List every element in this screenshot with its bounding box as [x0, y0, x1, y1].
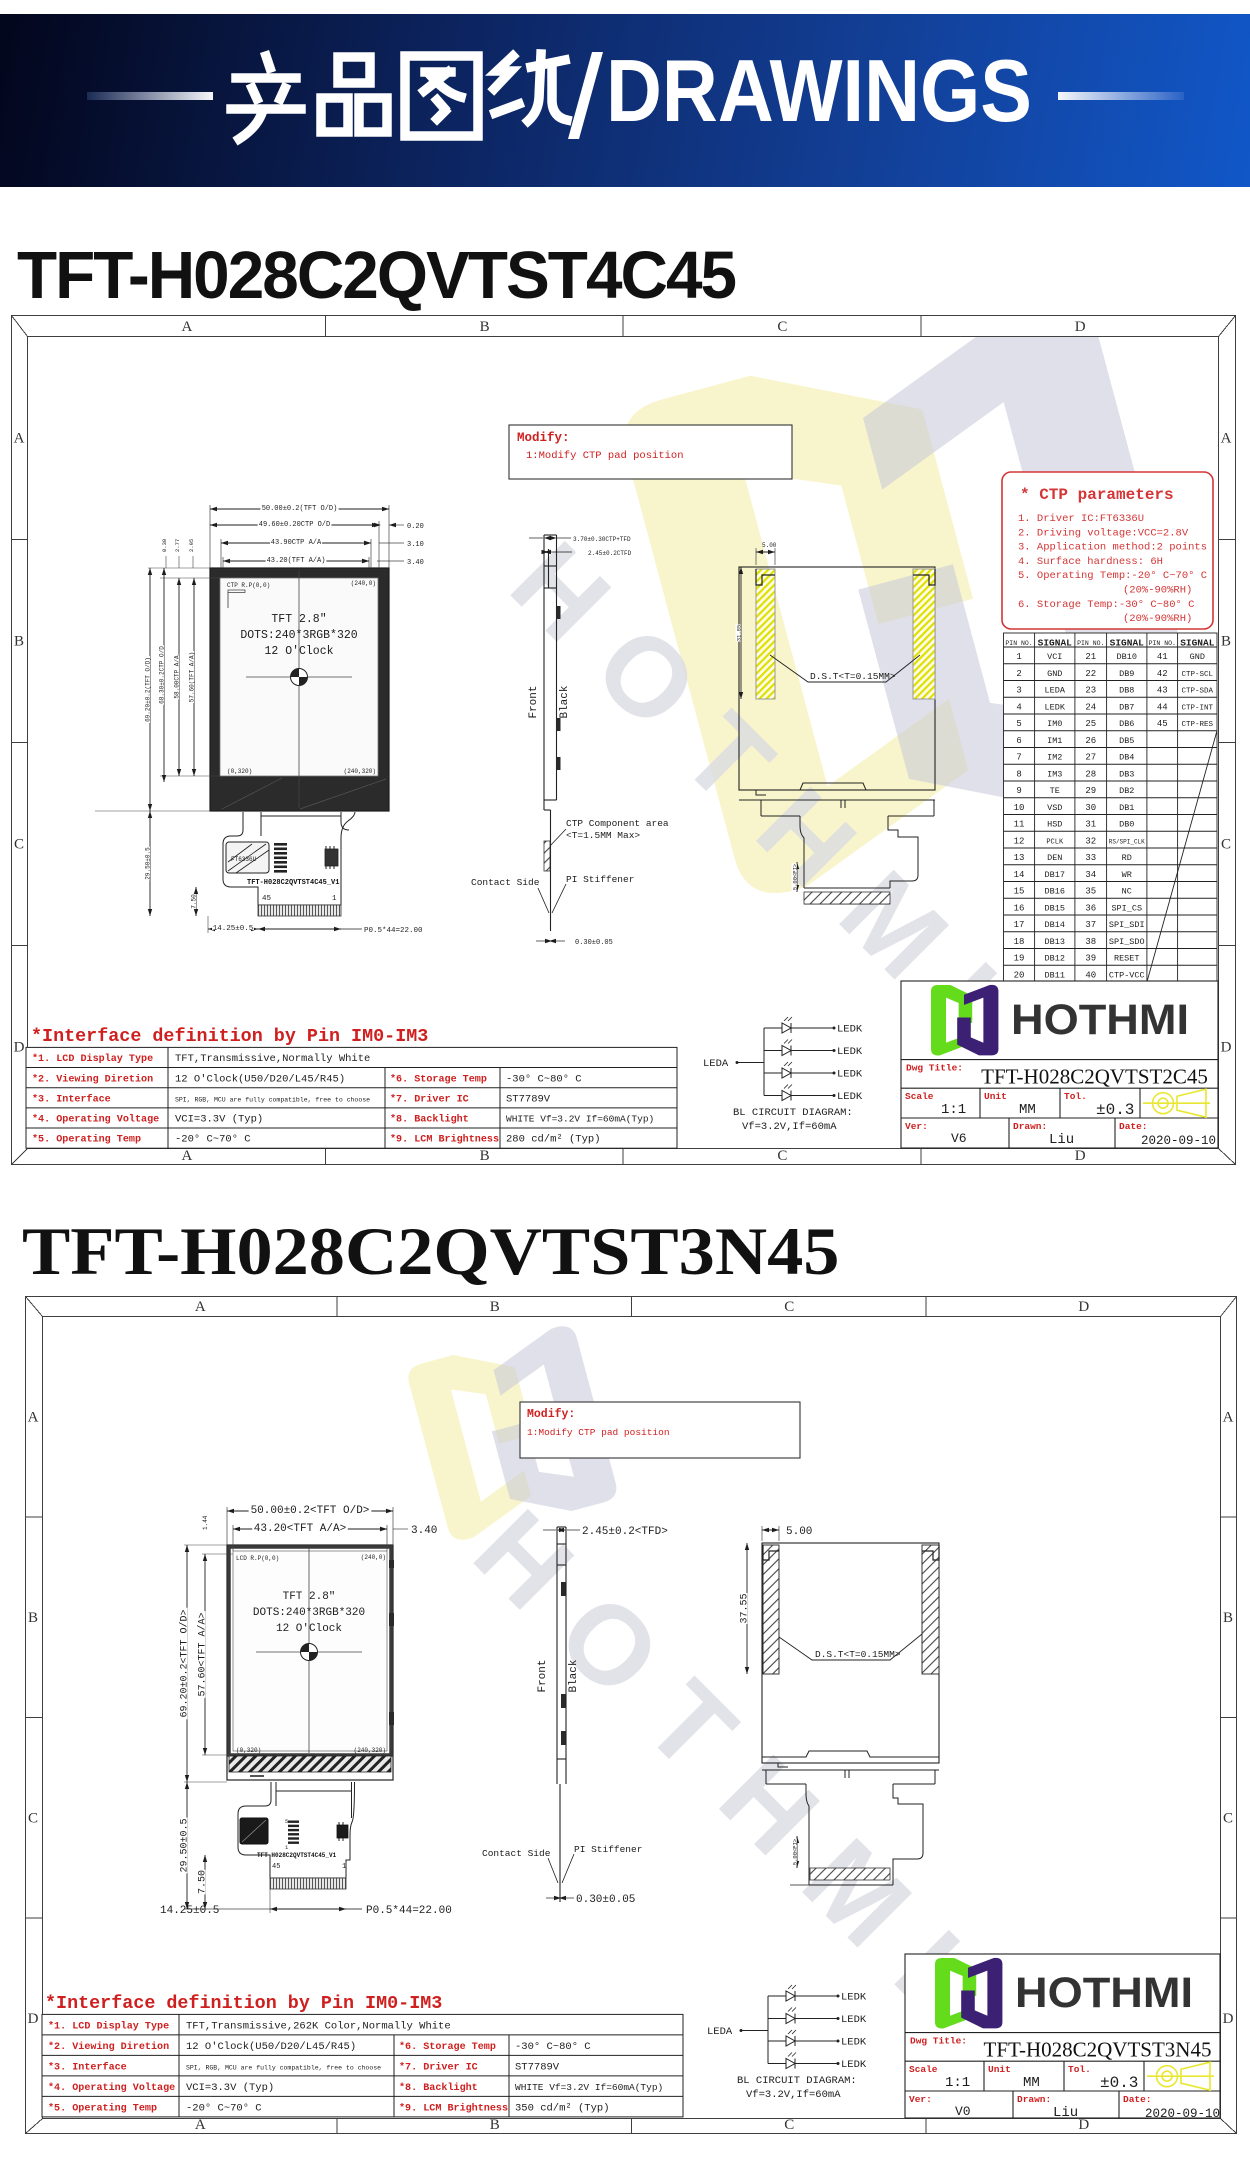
svg-text:4: 4 — [1016, 702, 1021, 712]
svg-text:12 O'Clock(U50/D20/L45/R45): 12 O'Clock(U50/D20/L45/R45) — [175, 1073, 345, 1085]
svg-text:TFT-H028C2QVTST4C45_V1: TFT-H028C2QVTST4C45_V1 — [247, 879, 339, 887]
svg-text:SPI_CS: SPI_CS — [1111, 903, 1142, 913]
svg-text:D.S.T<T=0.15MM>: D.S.T<T=0.15MM> — [810, 671, 896, 682]
svg-text:69.20±0.2(TFT O/D): 69.20±0.2(TFT O/D) — [145, 657, 152, 722]
svg-text:<T=1.5MM Max>: <T=1.5MM Max> — [566, 830, 640, 841]
svg-text:CTP Component area: CTP Component area — [566, 818, 669, 829]
svg-text:Ver:: Ver: — [909, 2094, 932, 2105]
svg-text:DB4: DB4 — [1119, 753, 1134, 763]
svg-text:D.S.T<T=0.15MM>: D.S.T<T=0.15MM> — [815, 1649, 901, 1660]
svg-text:3. Application method:2 points: 3. Application method:2 points — [1018, 542, 1207, 554]
svg-text:DB17: DB17 — [1045, 870, 1065, 880]
svg-text:Front: Front — [537, 1659, 549, 1692]
svg-text:B: B — [480, 319, 490, 335]
svg-text:0.30: 0.30 — [161, 539, 168, 552]
svg-text:41: 41 — [1157, 652, 1168, 662]
svg-text:LEDK: LEDK — [841, 1992, 867, 2004]
svg-text:-30° C~80° C: -30° C~80° C — [506, 1073, 582, 1085]
svg-text:1.44: 1.44 — [202, 1515, 209, 1530]
svg-text:A: A — [28, 1409, 39, 1425]
svg-text:DOTS:240*3RGB*320: DOTS:240*3RGB*320 — [253, 1607, 365, 1619]
svg-text:PI Stiffener: PI Stiffener — [574, 1844, 642, 1855]
svg-text:45: 45 — [272, 1863, 280, 1871]
svg-text:PCLK: PCLK — [1046, 838, 1064, 846]
svg-text:IM0: IM0 — [1047, 719, 1062, 729]
svg-text:TFT-H028C2QVTST2C45: TFT-H028C2QVTST2C45 — [981, 1065, 1208, 1089]
svg-text:WHITE Vf=3.2V If=60mA(Typ): WHITE Vf=3.2V If=60mA(Typ) — [515, 2082, 663, 2093]
svg-text:Dwg Title:: Dwg Title: — [906, 1063, 963, 1074]
svg-text:Vf=3.2V,If=60mA: Vf=3.2V,If=60mA — [746, 2089, 841, 2101]
svg-text:5.00<PI>: 5.00<PI> — [791, 1839, 798, 1865]
svg-text:CTP-VCC: CTP-VCC — [1109, 970, 1145, 980]
svg-text:LEDK: LEDK — [1045, 702, 1066, 712]
svg-text:TFT 2.8": TFT 2.8" — [283, 1591, 336, 1603]
svg-text:D: D — [14, 1040, 25, 1056]
svg-text:2.45±0.2<TFD>: 2.45±0.2<TFD> — [582, 1526, 668, 1538]
svg-text:5.00: 5.00 — [762, 542, 777, 549]
svg-text:DB15: DB15 — [1045, 903, 1065, 913]
svg-text:LEDK: LEDK — [841, 2059, 867, 2071]
svg-text:350 cd/m² (Typ): 350 cd/m² (Typ) — [515, 2102, 610, 2114]
svg-text:* CTP parameters: * CTP parameters — [1020, 486, 1174, 504]
svg-text:9: 9 — [1016, 786, 1021, 796]
svg-text:3.10: 3.10 — [407, 541, 424, 549]
svg-text:23: 23 — [1085, 686, 1096, 696]
svg-text:VCI=3.3V (Typ): VCI=3.3V (Typ) — [186, 2082, 274, 2094]
svg-text:Date:: Date: — [1123, 2094, 1152, 2105]
svg-text:LEDK: LEDK — [837, 1069, 863, 1081]
svg-text:DB2: DB2 — [1119, 786, 1134, 796]
svg-text:12 O'Clock(U50/D20/L45/R45): 12 O'Clock(U50/D20/L45/R45) — [186, 2041, 356, 2053]
svg-text:21: 21 — [1085, 652, 1096, 662]
svg-text:SPI, RGB, MCU are fully compat: SPI, RGB, MCU are fully compatible, free… — [175, 1096, 370, 1103]
svg-text:BL CIRCUIT DIAGRAM:: BL CIRCUIT DIAGRAM: — [737, 2075, 857, 2087]
svg-text:8: 8 — [1016, 769, 1021, 779]
svg-text:B: B — [1223, 1610, 1233, 1626]
svg-text:B: B — [490, 1299, 500, 1315]
svg-text:A: A — [195, 2117, 206, 2133]
svg-text:*6. Storage Temp: *6. Storage Temp — [390, 1073, 487, 1085]
svg-text:13: 13 — [1014, 853, 1025, 863]
svg-text:*7. Driver IC: *7. Driver IC — [390, 1093, 469, 1105]
svg-text:1. Driver IC:FT6336U: 1. Driver IC:FT6336U — [1018, 513, 1144, 525]
svg-text:12: 12 — [1014, 836, 1025, 846]
svg-text:D: D — [28, 2011, 39, 2027]
svg-text:5. Operating Temp:-20° C~70° C: 5. Operating Temp:-20° C~70° C — [1018, 570, 1207, 582]
svg-text:36: 36 — [1085, 903, 1096, 913]
svg-text:C: C — [1221, 837, 1231, 853]
svg-text:5: 5 — [285, 1818, 288, 1825]
svg-text:22: 22 — [1085, 669, 1096, 679]
svg-text:Contact Side: Contact Side — [471, 877, 540, 888]
svg-text:4. Surface hardness: 6H: 4. Surface hardness: 6H — [1018, 556, 1163, 568]
svg-text:HOTHMI: HOTHMI — [1015, 1969, 1193, 2017]
svg-text:37.55: 37.55 — [740, 1593, 751, 1623]
svg-text:*4. Operating Voltage: *4. Operating Voltage — [48, 2082, 175, 2094]
svg-text:Scale: Scale — [909, 2064, 938, 2075]
svg-text:45: 45 — [1157, 719, 1168, 729]
svg-text:D: D — [1078, 2117, 1089, 2133]
svg-text:V6: V6 — [951, 1131, 967, 1146]
svg-text:28: 28 — [1085, 769, 1096, 779]
svg-text:(20%-90%RH): (20%-90%RH) — [1123, 613, 1192, 625]
svg-text:DB0: DB0 — [1119, 820, 1134, 830]
svg-text:C: C — [28, 1810, 38, 1826]
svg-text:0.20: 0.20 — [407, 523, 424, 531]
svg-text:43: 43 — [1157, 686, 1168, 696]
svg-text:5.00: 5.00 — [786, 1526, 812, 1538]
svg-text:Drawn:: Drawn: — [1017, 2094, 1051, 2105]
svg-text:LEDK: LEDK — [837, 1091, 863, 1103]
svg-text:33: 33 — [1085, 853, 1096, 863]
svg-text:DB10: DB10 — [1117, 652, 1137, 662]
svg-text:Modify:: Modify: — [517, 431, 570, 445]
svg-text:DB14: DB14 — [1045, 920, 1065, 930]
svg-text:*2. Viewing Diretion: *2. Viewing Diretion — [32, 1073, 153, 1085]
svg-text:Dwg Title:: Dwg Title: — [910, 2036, 967, 2047]
svg-text:*9. LCM Brightness: *9. LCM Brightness — [399, 2102, 508, 2114]
svg-text:LEDK: LEDK — [837, 1024, 863, 1036]
svg-text:DB11: DB11 — [1045, 970, 1065, 980]
svg-text:SPI, RGB, MCU are fully compat: SPI, RGB, MCU are fully compatible, free… — [186, 2064, 381, 2071]
svg-text:*4. Operating Voltage: *4. Operating Voltage — [32, 1114, 159, 1126]
svg-text:-30° C~80° C: -30° C~80° C — [515, 2041, 591, 2053]
svg-text:DB6: DB6 — [1119, 719, 1134, 729]
svg-text:A: A — [181, 1148, 192, 1164]
svg-text:27: 27 — [1085, 753, 1096, 763]
svg-text:Date:: Date: — [1119, 1121, 1148, 1132]
svg-text:44: 44 — [1157, 702, 1168, 712]
svg-text:TFT 2.8": TFT 2.8" — [271, 613, 326, 626]
svg-text:24: 24 — [1085, 702, 1096, 712]
svg-text:14.25±0.5: 14.25±0.5 — [213, 925, 254, 933]
svg-text:57.60(TFT A/A): 57.60(TFT A/A) — [189, 652, 196, 702]
svg-text:C: C — [784, 1299, 794, 1315]
svg-text:2.77: 2.77 — [174, 539, 181, 552]
svg-text:2.95: 2.95 — [188, 539, 195, 552]
svg-text:LEDA: LEDA — [1045, 686, 1066, 696]
svg-text:C: C — [777, 319, 787, 335]
svg-text:Contact Side: Contact Side — [482, 1848, 551, 1859]
svg-text:IM2: IM2 — [1047, 753, 1062, 763]
svg-text:DB7: DB7 — [1119, 702, 1134, 712]
svg-text:Vf=3.2V,If=60mA: Vf=3.2V,If=60mA — [742, 1121, 837, 1133]
svg-text:*9. LCM Brightness: *9. LCM Brightness — [390, 1134, 499, 1146]
svg-text:32: 32 — [1085, 836, 1096, 846]
svg-text:DOTS:240*3RGB*320: DOTS:240*3RGB*320 — [240, 629, 357, 642]
svg-text:2020-09-10: 2020-09-10 — [1145, 2107, 1220, 2121]
svg-text:10: 10 — [1014, 803, 1025, 813]
svg-text:GND: GND — [1190, 652, 1205, 662]
svg-text:DB8: DB8 — [1119, 686, 1134, 696]
svg-text:2.45±0.2CTFD: 2.45±0.2CTFD — [588, 550, 632, 557]
svg-text:SPI_SDI: SPI_SDI — [1109, 920, 1145, 930]
svg-text:35: 35 — [1085, 887, 1096, 897]
svg-text:GND: GND — [1047, 669, 1062, 679]
svg-text:MM: MM — [1019, 1102, 1036, 1118]
svg-text:(240,320): (240,320) — [344, 768, 376, 775]
svg-text:42: 42 — [1157, 669, 1168, 679]
svg-text:PIN NO.: PIN NO. — [1077, 640, 1104, 647]
svg-text:B: B — [14, 634, 24, 650]
svg-text:BL CIRCUIT DIAGRAM:: BL CIRCUIT DIAGRAM: — [733, 1107, 853, 1119]
svg-text:B: B — [28, 1610, 38, 1626]
svg-text:19: 19 — [1014, 954, 1025, 964]
svg-text:*5. Operating Temp: *5. Operating Temp — [48, 2102, 157, 2114]
svg-text:14: 14 — [1014, 870, 1025, 880]
svg-text:6: 6 — [1016, 736, 1021, 746]
svg-text:29.50±0.5: 29.50±0.5 — [145, 847, 152, 880]
svg-text:18: 18 — [1014, 937, 1025, 947]
svg-text:(0,320): (0,320) — [236, 1747, 261, 1754]
svg-text:12 O'Clock: 12 O'Clock — [276, 1623, 342, 1635]
svg-text:PIN NO.: PIN NO. — [1149, 640, 1176, 647]
svg-text:DEN: DEN — [1047, 853, 1062, 863]
svg-text:39: 39 — [1085, 954, 1096, 964]
svg-text:CTP-INT: CTP-INT — [1182, 704, 1214, 712]
svg-text:Tol.: Tol. — [1064, 1091, 1087, 1102]
svg-text:*Interface definition by Pin I: *Interface definition by Pin IM0-IM3 — [45, 1993, 442, 2014]
svg-text:TE: TE — [1050, 786, 1060, 796]
svg-text:7.50: 7.50 — [198, 1870, 209, 1894]
svg-text:37: 37 — [1085, 920, 1096, 930]
svg-text:*Interface definition by Pin I: *Interface definition by Pin IM0-IM3 — [31, 1026, 428, 1047]
svg-text:(20%-90%RH): (20%-90%RH) — [1123, 585, 1192, 597]
svg-text:SIGNAL: SIGNAL — [1110, 638, 1145, 649]
svg-text:IM3: IM3 — [1047, 769, 1062, 779]
svg-text:1: 1 — [332, 895, 337, 903]
svg-text:Tol.: Tol. — [1068, 2064, 1091, 2075]
svg-text:50.00±0.2(TFT O/D): 50.00±0.2(TFT O/D) — [262, 505, 338, 513]
svg-text:TFT,Transmissive,Normally Whit: TFT,Transmissive,Normally White — [175, 1053, 370, 1065]
svg-text:A: A — [195, 1299, 206, 1315]
svg-text:31: 31 — [1085, 820, 1096, 830]
svg-text:6. Storage Temp:-30° C~80° C: 6. Storage Temp:-30° C~80° C — [1018, 599, 1194, 611]
svg-text:V0: V0 — [955, 2104, 971, 2119]
svg-text:2: 2 — [1016, 669, 1021, 679]
svg-text:50.00±0.2<TFT O/D>: 50.00±0.2<TFT O/D> — [251, 1505, 370, 1517]
svg-text:14.25±0.5: 14.25±0.5 — [160, 1905, 219, 1917]
svg-text:7.50: 7.50 — [191, 894, 198, 909]
svg-text:-20° C~70° C: -20° C~70° C — [175, 1134, 251, 1146]
svg-text:TFT-H028C2QVTST3N45: TFT-H028C2QVTST3N45 — [984, 2038, 1212, 2062]
svg-text:Liu: Liu — [1053, 2105, 1078, 2121]
svg-text:SIGNAL: SIGNAL — [1180, 638, 1215, 649]
svg-text:57.60<TFT A/A>: 57.60<TFT A/A> — [197, 1612, 209, 1696]
svg-text:(240,0): (240,0) — [351, 580, 376, 587]
svg-text:2. Driving voltage:VCC=2.8V: 2. Driving voltage:VCC=2.8V — [1018, 527, 1189, 539]
svg-text:*8. Backlight: *8. Backlight — [399, 2082, 478, 2094]
svg-text:1: 1 — [285, 1844, 289, 1851]
svg-text:DB9: DB9 — [1119, 669, 1134, 679]
svg-text:1: 1 — [1016, 652, 1021, 662]
svg-text:D: D — [1078, 1299, 1089, 1315]
svg-text:MM: MM — [1023, 2075, 1040, 2091]
svg-text:A: A — [1221, 431, 1232, 447]
svg-text:B: B — [490, 2117, 500, 2133]
svg-text:25: 25 — [1085, 719, 1096, 729]
svg-text:43.90CTP A/A: 43.90CTP A/A — [271, 539, 322, 547]
svg-text:SPI_SDO: SPI_SDO — [1109, 937, 1145, 947]
svg-text:0.30±0.05: 0.30±0.05 — [576, 1894, 635, 1906]
svg-text:C: C — [14, 837, 24, 853]
svg-text:D: D — [1075, 1148, 1086, 1164]
svg-text:2020-09-10: 2020-09-10 — [1141, 1134, 1216, 1148]
svg-text:FT6336U: FT6336U — [231, 856, 257, 863]
svg-text:*3. Interface: *3. Interface — [32, 1093, 111, 1105]
svg-text:43.20<TFT A/A>: 43.20<TFT A/A> — [254, 1523, 346, 1535]
svg-text:DB13: DB13 — [1045, 937, 1065, 947]
svg-text:(0,320): (0,320) — [227, 768, 252, 775]
svg-text:HOTHMI: HOTHMI — [1011, 996, 1189, 1044]
svg-text:*1. LCD Display Type: *1. LCD Display Type — [48, 2020, 169, 2032]
svg-text:Black: Black — [568, 1659, 580, 1692]
svg-text:16: 16 — [1014, 903, 1025, 913]
svg-text:CTP-RES: CTP-RES — [1182, 721, 1214, 729]
svg-text:29.50±0.5: 29.50±0.5 — [180, 1818, 191, 1872]
svg-text:DB1: DB1 — [1119, 803, 1134, 813]
svg-text:69.20±0.2<TFT O/D>: 69.20±0.2<TFT O/D> — [179, 1609, 191, 1717]
svg-text:B: B — [480, 1148, 490, 1164]
svg-text:26: 26 — [1085, 736, 1096, 746]
svg-text:LEDA: LEDA — [707, 2026, 733, 2038]
svg-text:RESET: RESET — [1114, 954, 1140, 964]
svg-text:RD: RD — [1122, 853, 1132, 863]
svg-text:SIGNAL: SIGNAL — [1038, 638, 1073, 649]
svg-text:P0.5*44=22.00: P0.5*44=22.00 — [364, 927, 423, 935]
svg-text:LEDK: LEDK — [837, 1046, 863, 1058]
svg-text:TFT-H028C2QVTST4C45_V1: TFT-H028C2QVTST4C45_V1 — [257, 1852, 337, 1859]
svg-text:3.40: 3.40 — [411, 1525, 437, 1537]
svg-text:38: 38 — [1085, 937, 1096, 947]
svg-text:LEDK: LEDK — [841, 2037, 867, 2049]
svg-text:(240,320): (240,320) — [354, 1747, 386, 1754]
svg-text:15: 15 — [1014, 887, 1025, 897]
svg-text:ST7789V: ST7789V — [506, 1093, 551, 1105]
svg-text:280 cd/m² (Typ): 280 cd/m² (Typ) — [506, 1134, 601, 1146]
svg-text:17: 17 — [1014, 920, 1025, 930]
svg-text:±0.3: ±0.3 — [1096, 1101, 1134, 1119]
svg-text:12 O'Clock: 12 O'Clock — [264, 645, 333, 658]
svg-text:20: 20 — [1014, 970, 1025, 980]
svg-text:Unit: Unit — [984, 1091, 1007, 1102]
svg-text:40: 40 — [1085, 970, 1096, 980]
svg-text:Drawn:: Drawn: — [1013, 1121, 1047, 1132]
svg-text:DB3: DB3 — [1119, 769, 1134, 779]
svg-text:1:Modify CTP pad position: 1:Modify CTP pad position — [527, 1427, 670, 1438]
svg-text:CTP-SDA: CTP-SDA — [1182, 688, 1214, 696]
svg-text:11: 11 — [1014, 820, 1025, 830]
svg-text:B: B — [1221, 634, 1231, 650]
svg-text:3.70±0.30CTP+TFD: 3.70±0.30CTP+TFD — [573, 536, 631, 543]
svg-text:C: C — [777, 1148, 787, 1164]
svg-text:DB16: DB16 — [1045, 887, 1065, 897]
svg-text:(240,0): (240,0) — [361, 1554, 386, 1561]
svg-text:*8. Backlight: *8. Backlight — [390, 1114, 469, 1126]
svg-text:DB5: DB5 — [1119, 736, 1134, 746]
svg-text:LEDK: LEDK — [841, 2014, 867, 2026]
svg-text:Modify:: Modify: — [527, 1408, 575, 1421]
svg-text:NC: NC — [1122, 887, 1132, 897]
svg-text:*7. Driver IC: *7. Driver IC — [399, 2061, 478, 2073]
svg-text:DB12: DB12 — [1045, 954, 1065, 964]
svg-text:PI Stiffener: PI Stiffener — [566, 874, 634, 885]
svg-text:1:1: 1:1 — [941, 1102, 966, 1118]
svg-text:LEDA: LEDA — [703, 1058, 729, 1070]
svg-text:Black: Black — [559, 685, 571, 718]
svg-text:-20° C~70° C: -20° C~70° C — [186, 2102, 262, 2114]
svg-text:5: 5 — [1016, 719, 1021, 729]
svg-text:VCI=3.3V (Typ): VCI=3.3V (Typ) — [175, 1114, 263, 1126]
svg-text:TFT,Transmissive,262K Color,No: TFT,Transmissive,262K Color,Normally Whi… — [186, 2020, 451, 2032]
svg-text:C: C — [1223, 1810, 1233, 1826]
svg-text:±0.3: ±0.3 — [1100, 2074, 1138, 2092]
svg-text:PIN NO.: PIN NO. — [1005, 640, 1032, 647]
svg-text:C: C — [784, 2117, 794, 2133]
svg-text:WHITE Vf=3.2V If=60mA(Typ): WHITE Vf=3.2V If=60mA(Typ) — [506, 1114, 654, 1125]
svg-text:*6. Storage Temp: *6. Storage Temp — [399, 2041, 496, 2053]
svg-text:45: 45 — [262, 895, 272, 903]
svg-text:Unit: Unit — [988, 2064, 1011, 2075]
svg-text:1:1: 1:1 — [945, 2075, 970, 2091]
svg-text:D: D — [1223, 2011, 1234, 2027]
svg-text:Ver:: Ver: — [905, 1121, 928, 1132]
svg-text:A: A — [14, 431, 25, 447]
svg-text:VCI: VCI — [1047, 652, 1062, 662]
svg-text:30: 30 — [1085, 803, 1096, 813]
svg-text:*5. Operating Temp: *5. Operating Temp — [32, 1134, 141, 1146]
svg-text:*3. Interface: *3. Interface — [48, 2061, 127, 2073]
svg-text:CTP-SCL: CTP-SCL — [1182, 671, 1214, 679]
svg-text:CTP R.P(0,0): CTP R.P(0,0) — [227, 582, 270, 589]
svg-text:WR: WR — [1122, 870, 1132, 880]
svg-text:31.85: 31.85 — [735, 625, 742, 642]
svg-text:43.20(TFT A/A): 43.20(TFT A/A) — [267, 557, 326, 565]
svg-text:A: A — [181, 319, 192, 335]
svg-text:3.40: 3.40 — [407, 559, 424, 567]
svg-text:1: 1 — [342, 1863, 346, 1871]
svg-text:Liu: Liu — [1049, 1132, 1074, 1148]
svg-text:0.30±0.05: 0.30±0.05 — [575, 939, 613, 947]
svg-text:IM1: IM1 — [1047, 736, 1062, 746]
svg-text:*2. Viewing Diretion: *2. Viewing Diretion — [48, 2041, 169, 2053]
svg-text:5.00<PI>: 5.00<PI> — [791, 864, 798, 890]
svg-text:ST7789V: ST7789V — [515, 2061, 560, 2073]
svg-text:7: 7 — [1016, 753, 1021, 763]
svg-text:D: D — [1075, 319, 1086, 335]
svg-text:68.30±0.2CTP O/D: 68.30±0.2CTP O/D — [159, 646, 166, 704]
svg-text:29: 29 — [1085, 786, 1096, 796]
svg-text:Front: Front — [528, 685, 540, 718]
svg-text:1:Modify CTP pad position: 1:Modify CTP pad position — [526, 450, 684, 462]
svg-text:34: 34 — [1085, 870, 1096, 880]
svg-text:P0.5*44=22.00: P0.5*44=22.00 — [366, 1905, 452, 1917]
svg-text:VSD: VSD — [1047, 803, 1062, 813]
svg-text:HSD: HSD — [1047, 820, 1062, 830]
svg-text:D: D — [1221, 1040, 1232, 1056]
svg-text:3: 3 — [1016, 686, 1021, 696]
svg-text:A: A — [1223, 1409, 1234, 1425]
svg-text:Scale: Scale — [905, 1091, 934, 1102]
svg-text:LCD R.P(0,0): LCD R.P(0,0) — [236, 1555, 279, 1562]
svg-text:RS/SPI_CLK: RS/SPI_CLK — [1109, 838, 1145, 845]
svg-text:*1. LCD Display Type: *1. LCD Display Type — [32, 1053, 153, 1065]
svg-text:58.00CTP A/A: 58.00CTP A/A — [174, 655, 181, 699]
svg-text:49.60±0.20CTP O/D: 49.60±0.20CTP O/D — [259, 521, 330, 529]
